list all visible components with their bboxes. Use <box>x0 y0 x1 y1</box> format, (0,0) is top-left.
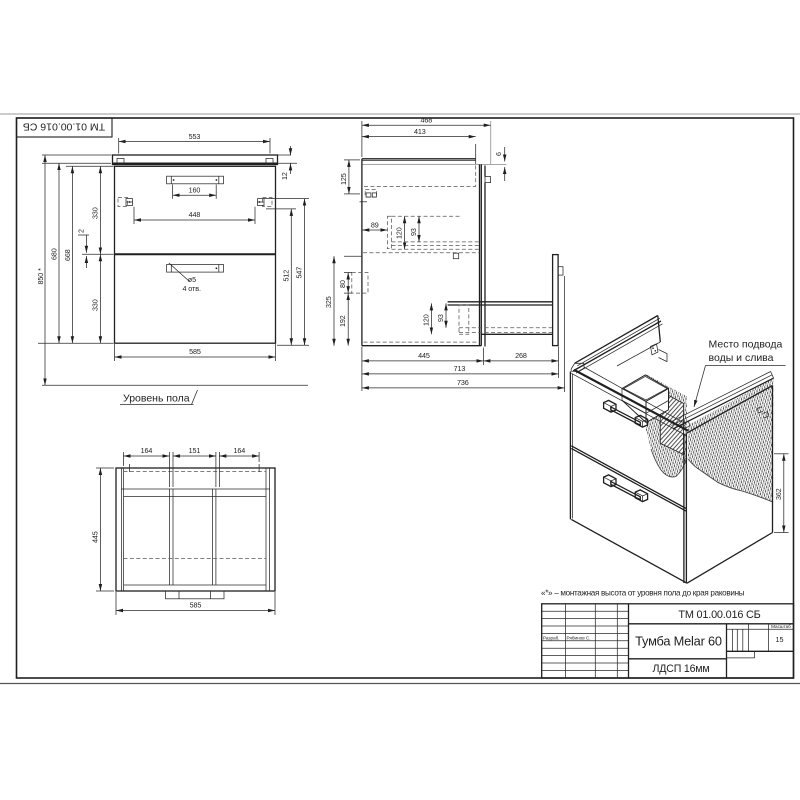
svg-text:268: 268 <box>515 351 527 360</box>
svg-text:192: 192 <box>338 315 347 327</box>
svg-text:ТМ 01.00.016 СБ: ТМ 01.00.016 СБ <box>23 120 105 132</box>
svg-text:ТМ 01.00.016 СБ: ТМ 01.00.016 СБ <box>678 609 760 621</box>
svg-text:2: 2 <box>76 229 85 233</box>
svg-text:15: 15 <box>776 635 784 644</box>
svg-text:164: 164 <box>233 446 245 455</box>
svg-text:Рябинов С.: Рябинов С. <box>567 635 591 640</box>
svg-text:553: 553 <box>189 132 201 141</box>
svg-text:Место подвода: Место подвода <box>709 339 783 351</box>
svg-text:Тумба Melar 60: Тумба Melar 60 <box>635 634 722 649</box>
svg-text:736: 736 <box>457 378 469 387</box>
svg-text:151: 151 <box>189 446 201 455</box>
svg-text:445: 445 <box>90 531 99 543</box>
svg-text:воды и слива: воды и слива <box>709 352 774 364</box>
svg-text:89: 89 <box>371 220 379 229</box>
svg-text:ø5: ø5 <box>188 275 196 284</box>
svg-text:120: 120 <box>395 227 404 239</box>
svg-text:713: 713 <box>454 364 466 373</box>
svg-text:120: 120 <box>421 314 430 326</box>
svg-text:362: 362 <box>774 488 783 500</box>
svg-text:12: 12 <box>280 172 289 180</box>
svg-text:6: 6 <box>494 152 503 156</box>
svg-text:585: 585 <box>189 347 201 356</box>
svg-text:325: 325 <box>324 296 333 308</box>
svg-text:468: 468 <box>420 116 432 125</box>
svg-text:668: 668 <box>63 249 72 261</box>
svg-text:160: 160 <box>189 186 201 195</box>
svg-text:330: 330 <box>90 207 99 219</box>
svg-text:512: 512 <box>281 270 290 282</box>
svg-text:Масштаб: Масштаб <box>771 624 791 629</box>
svg-text:80: 80 <box>338 280 347 288</box>
svg-text:445: 445 <box>418 351 430 360</box>
svg-text:93: 93 <box>409 228 418 236</box>
svg-text:4 отв.: 4 отв. <box>183 284 201 293</box>
svg-text:ЛДСП 16мм: ЛДСП 16мм <box>653 663 710 675</box>
svg-text:413: 413 <box>414 127 426 136</box>
svg-text:330: 330 <box>90 299 99 311</box>
svg-text:Уровень пола: Уровень пола <box>123 393 190 405</box>
svg-text:585: 585 <box>190 601 202 610</box>
svg-text:448: 448 <box>189 210 201 219</box>
svg-text:680: 680 <box>50 248 59 260</box>
svg-text:93: 93 <box>436 314 445 322</box>
svg-text:Разраб.: Разраб. <box>543 635 560 640</box>
svg-text:«*» – монтажная высота от уров: «*» – монтажная высота от уровня пола до… <box>541 589 745 598</box>
svg-text:547: 547 <box>295 267 304 279</box>
svg-text:850 *: 850 * <box>36 268 45 285</box>
svg-text:125: 125 <box>339 173 348 185</box>
svg-text:164: 164 <box>141 446 153 455</box>
